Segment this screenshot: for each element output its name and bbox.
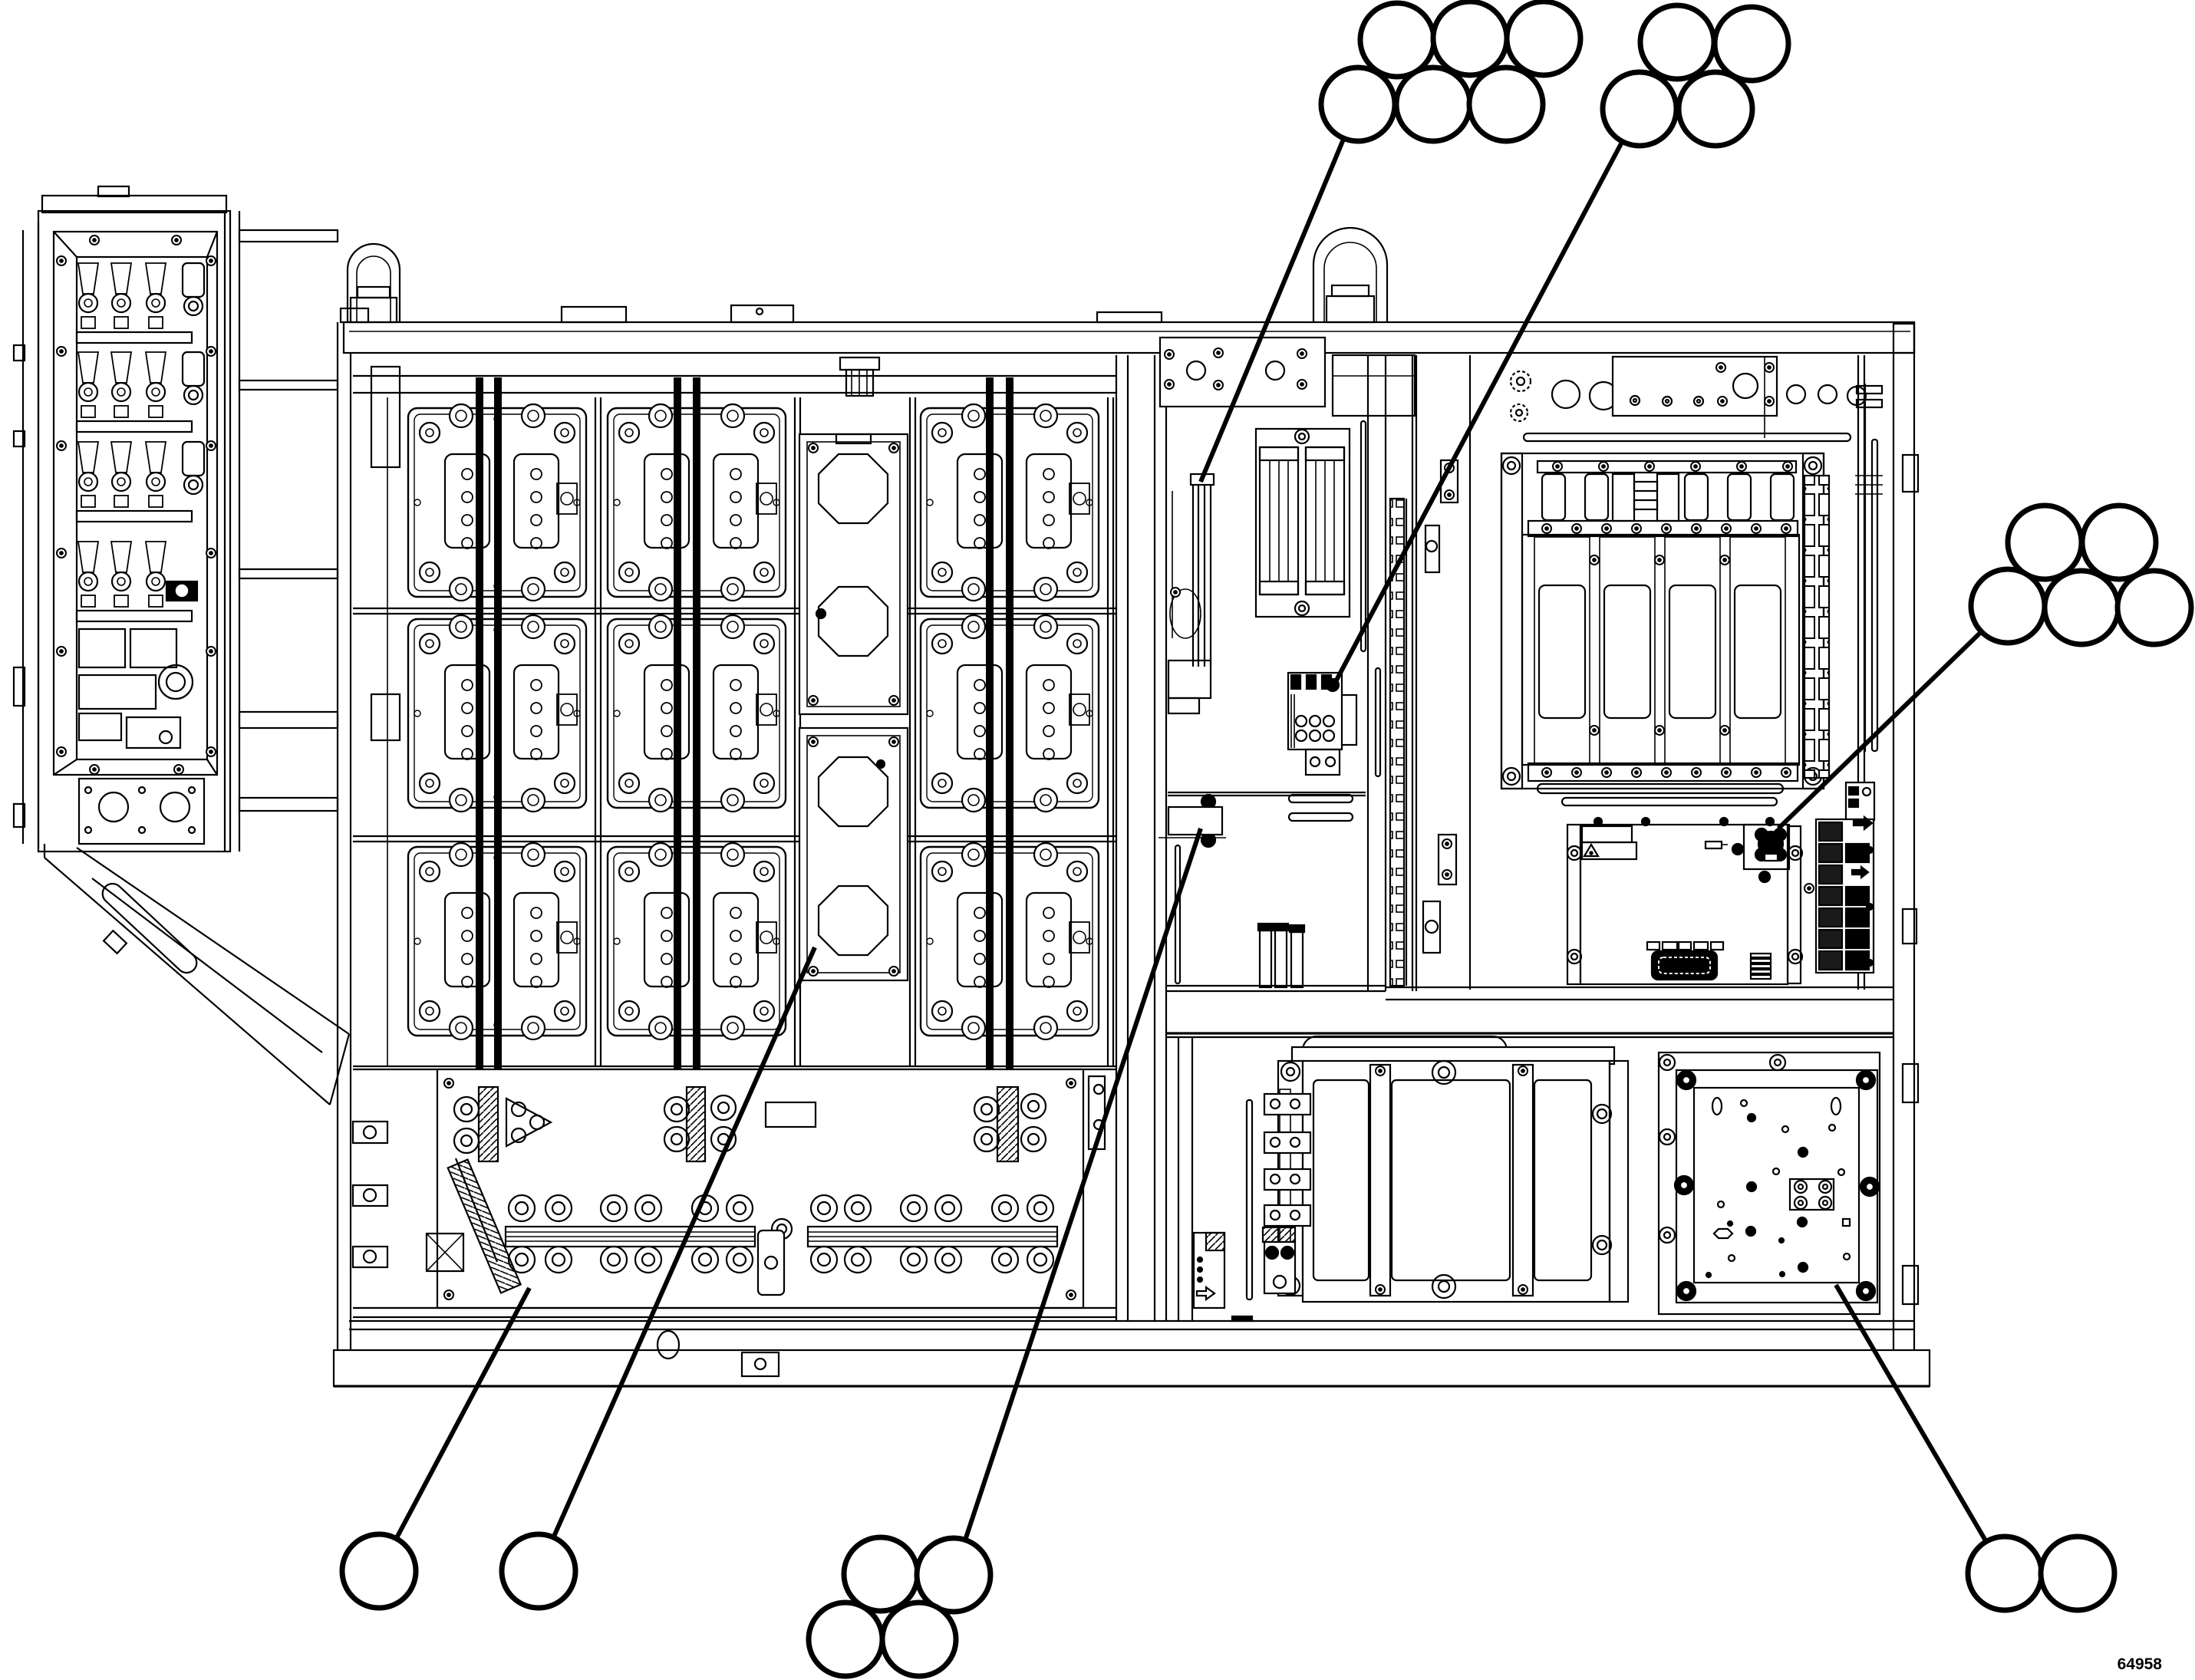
terminal-ladder: [1804, 476, 1829, 778]
callout-balloon-group-3: [2045, 571, 2118, 644]
fuse-panel: [1256, 429, 1350, 617]
breaker-rows: [77, 263, 204, 621]
standoff-tubes: [1258, 924, 1304, 987]
callout-balloon-group-4: [342, 1534, 416, 1608]
callout-balloon-group-1: [1321, 68, 1395, 141]
control-board: [1567, 818, 1802, 984]
callout-balloon-group-1: [1507, 2, 1580, 75]
right-bay: [1501, 357, 1883, 984]
transformer-bay: [1178, 1036, 1628, 1321]
blank-panel-bay: [1659, 1052, 1880, 1314]
breaker-cabinet-bottom-panel: [79, 779, 204, 844]
ground-lug-device: [1194, 1233, 1224, 1308]
leader-line-group-7: [1836, 1285, 2005, 1573]
callout-balloon-group-3: [2118, 571, 2191, 644]
io-terminal-grid: [1804, 817, 1874, 973]
callout-balloon-group-2: [1640, 5, 1714, 79]
drawing-number: 64958: [2118, 1655, 2163, 1673]
callout-balloon-group-1: [1360, 3, 1434, 77]
connecting-rails: [225, 211, 338, 852]
reactor-panel: [1501, 453, 1824, 805]
lifting-shackle-left: [348, 244, 400, 322]
heatsink-panel-lower: [799, 728, 908, 980]
aux-relay: [1846, 782, 1874, 820]
center-bay-lower-bracket: [1158, 795, 1226, 847]
inverter-bay: [353, 357, 1116, 1069]
callout-balloon-group-7: [2041, 1537, 2114, 1610]
busbar-section: [353, 1069, 1116, 1317]
breaker-cabinet-internals: [79, 629, 193, 748]
callout-balloon-group-7: [1968, 1537, 2042, 1610]
callout-balloon-group-1: [1433, 2, 1507, 75]
callout-balloon-group-6: [809, 1603, 882, 1676]
callout-balloon-group-5: [502, 1534, 575, 1608]
callout-balloon-group-3: [1971, 569, 2045, 643]
callout-balloon-group-6: [917, 1538, 990, 1612]
callout-balloon-group-2: [1679, 72, 1752, 146]
callout-balloon-group-2: [1715, 7, 1788, 81]
callout-balloon-group-6: [844, 1537, 918, 1611]
diagram-page: 64958: [0, 0, 2195, 1680]
flange-bolts-top: [1542, 524, 1791, 533]
heatsink-panel-upper: [799, 434, 908, 714]
callout-balloon-group-1: [1469, 68, 1543, 141]
callout-balloon-group-1: [1396, 68, 1470, 141]
left-breaker-cabinet: [14, 186, 349, 1105]
leader-line-group-1: [1201, 104, 1358, 482]
frame-screws: [57, 236, 216, 774]
sensor-bracket-center-bay-top: [1168, 474, 1214, 713]
machine-drawing: [14, 186, 1930, 1386]
flange-bolts-bottom: [1542, 768, 1791, 777]
callout-balloon-group-2: [1603, 72, 1676, 146]
leader-line-group-4: [379, 1288, 529, 1571]
lifting-shackle-middle: [1313, 228, 1387, 322]
exhaust-chute: [44, 844, 349, 1105]
diagram-canvas: 64958: [0, 0, 2195, 1680]
callout-balloon-group-3: [2082, 506, 2156, 579]
top-gland-strip: [1511, 357, 1882, 438]
left-wall: [14, 222, 38, 848]
callout-balloon-group-6: [882, 1603, 956, 1676]
contactor-block-center-bay: [1288, 673, 1356, 775]
